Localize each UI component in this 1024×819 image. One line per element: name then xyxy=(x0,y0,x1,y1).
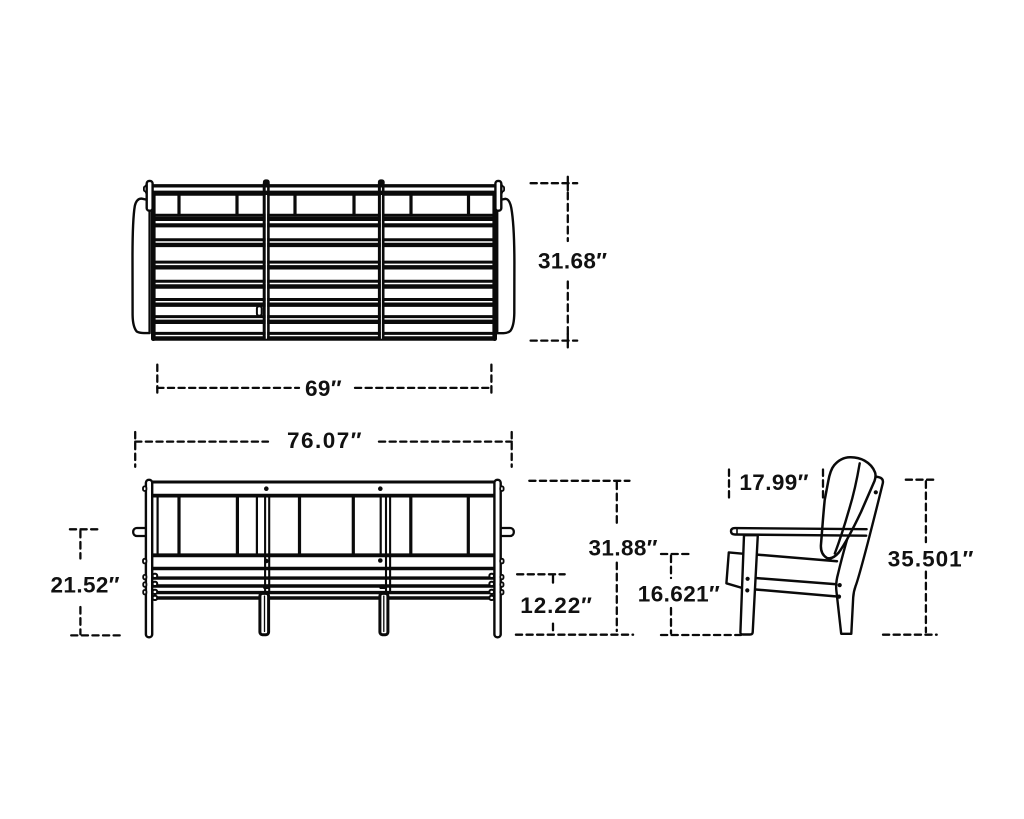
svg-text:31.88″: 31.88″ xyxy=(589,535,658,560)
svg-text:16.621″: 16.621″ xyxy=(638,582,720,607)
svg-text:35.501″: 35.501″ xyxy=(888,546,975,571)
svg-text:69″: 69″ xyxy=(305,376,342,401)
svg-text:21.52″: 21.52″ xyxy=(51,573,120,598)
svg-text:31.68″: 31.68″ xyxy=(538,249,607,274)
svg-text:17.99″: 17.99″ xyxy=(739,470,808,495)
svg-text:76.07″: 76.07″ xyxy=(287,428,363,453)
svg-text:12.22″: 12.22″ xyxy=(520,593,592,618)
